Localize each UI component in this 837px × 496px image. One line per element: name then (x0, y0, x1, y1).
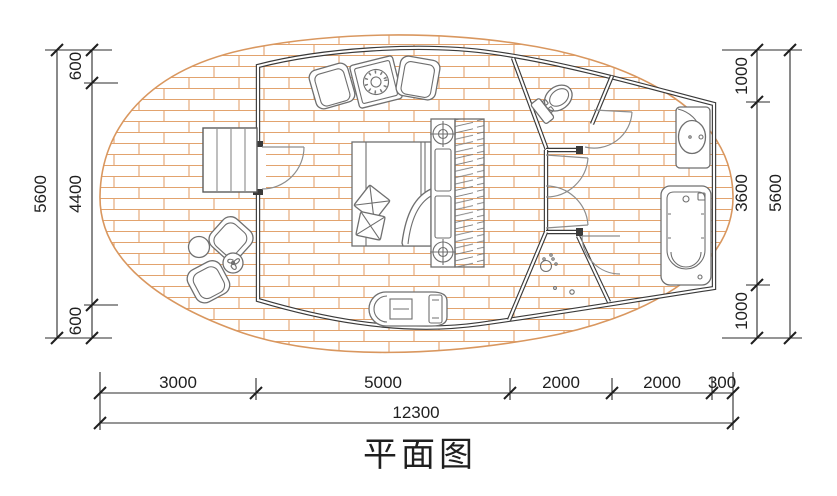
dim-label: 1000 (732, 292, 751, 330)
dimension-right: 1000 3600 1000 5600 (722, 44, 802, 344)
dim-label: 2000 (643, 373, 681, 392)
dim-label: 3000 (159, 373, 197, 392)
coffee-table (349, 55, 402, 108)
dim-label-total: 5600 (766, 174, 785, 212)
double-bed (352, 142, 431, 246)
sink-vanity (676, 107, 710, 168)
dim-label-total: 12300 (392, 403, 439, 422)
dimension-bottom: 3000 5000 2000 2000 300 12300 (94, 372, 739, 430)
dim-label: 5000 (364, 373, 402, 392)
dim-label: 3600 (732, 174, 751, 212)
lounge-chair-right (395, 55, 441, 101)
headboard (430, 119, 456, 267)
wardrobe (455, 119, 484, 267)
dim-label: 300 (708, 373, 736, 392)
page-title: 平面图 (363, 436, 477, 474)
dim-label: 1000 (732, 57, 751, 95)
stairs (203, 128, 257, 192)
dim-label: 600 (66, 307, 85, 335)
dim-label: 4400 (66, 175, 85, 213)
outdoor-side-table (189, 237, 210, 258)
floor-plan-page: 600 4400 600 5600 1000 3600 1000 5600 30… (0, 0, 837, 496)
pillow (356, 212, 385, 241)
outdoor-table (223, 253, 243, 273)
dim-label: 2000 (542, 373, 580, 392)
chaise-bench (369, 292, 447, 326)
dim-label-total: 5600 (31, 175, 50, 213)
floor-plan-drawing: 600 4400 600 5600 1000 3600 1000 5600 30… (0, 0, 837, 496)
bathtub (661, 186, 711, 285)
dim-label: 600 (66, 52, 85, 80)
